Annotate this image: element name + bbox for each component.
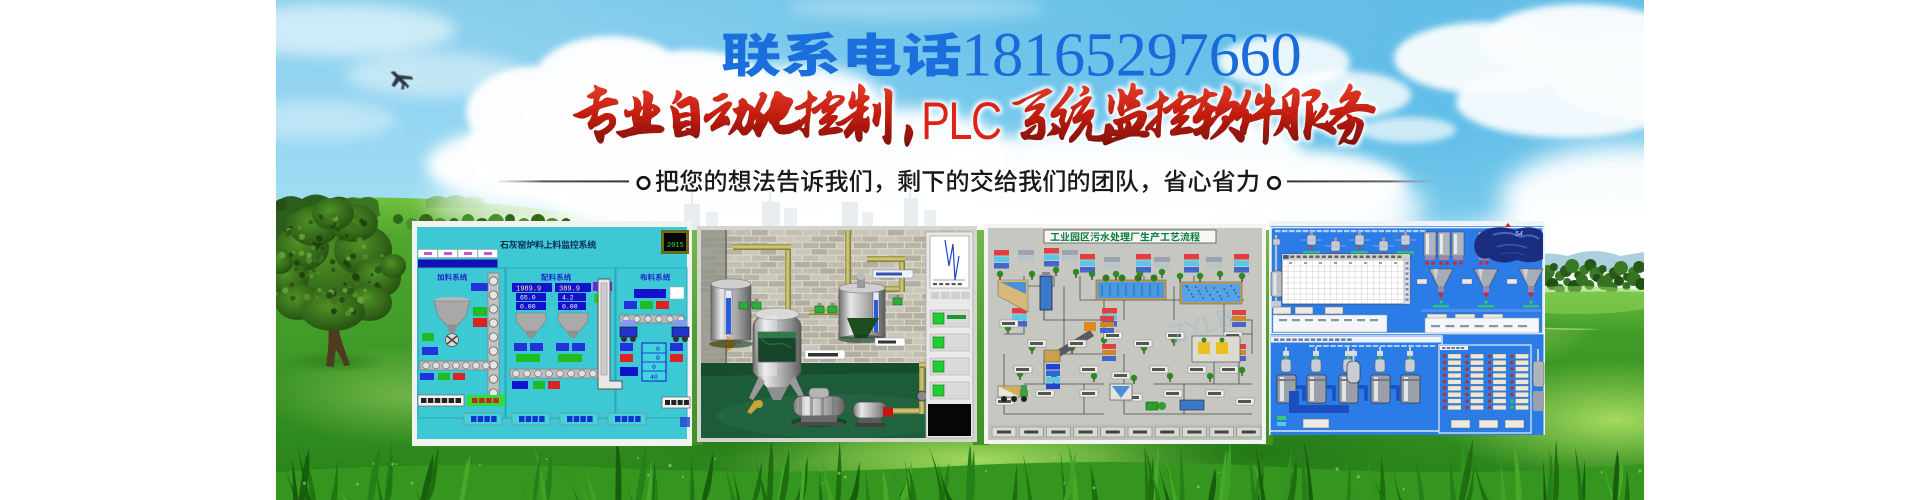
svg-text:0.00: 0.00 <box>562 304 578 311</box>
svg-text:0: 0 <box>656 355 660 362</box>
svg-text:4.2: 4.2 <box>562 295 574 302</box>
svg-text:2015: 2015 <box>667 242 684 250</box>
svg-text:389.9: 389.9 <box>559 286 580 294</box>
svg-text:1989.9: 1989.9 <box>516 286 541 294</box>
svg-text:0.00: 0.00 <box>520 304 536 311</box>
svg-text:0: 0 <box>652 364 656 371</box>
svg-text:0: 0 <box>656 346 660 353</box>
svg-text:PLC: PLC <box>921 92 1001 151</box>
svg-text:54: 54 <box>1515 231 1523 238</box>
svg-text:65.0: 65.0 <box>520 295 536 302</box>
svg-text:40: 40 <box>650 374 658 381</box>
